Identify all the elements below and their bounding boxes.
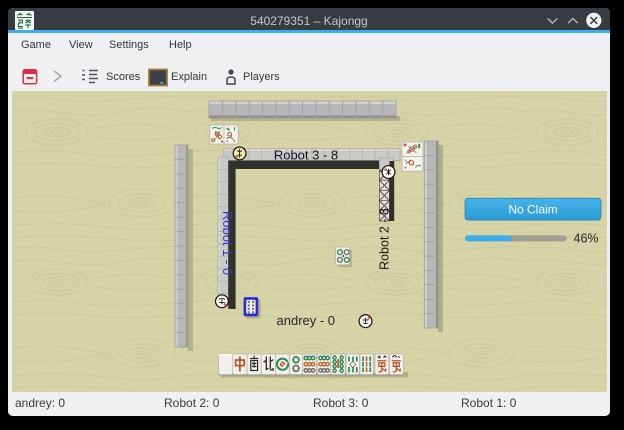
svg-text:Robot 1 - 0: Robot 1 - 0 [220,211,235,275]
svg-text:andrey - 0: andrey - 0 [277,313,336,328]
svg-text:46%: 46% [574,231,599,245]
svg-text:No Claim: No Claim [508,202,557,216]
svg-text:Robot 3 - 8: Robot 3 - 8 [274,148,338,163]
svg-text:Robot 2 - 8: Robot 2 - 8 [378,208,392,270]
